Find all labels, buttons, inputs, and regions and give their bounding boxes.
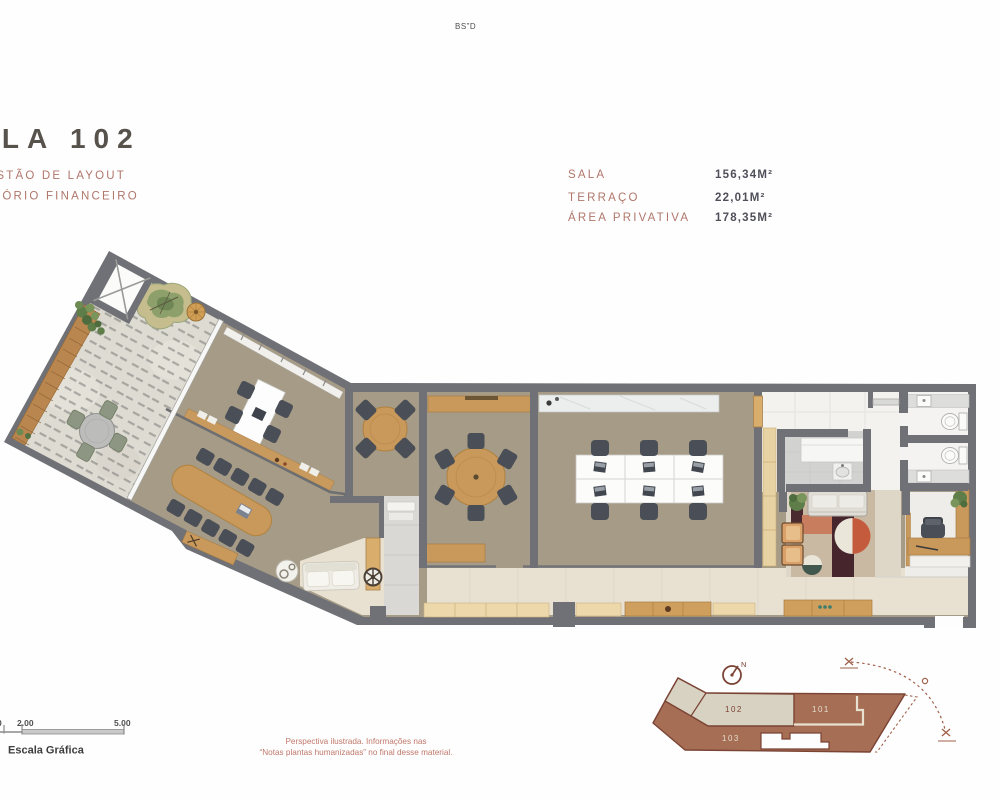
svg-text:103: 103 — [722, 734, 740, 743]
svg-text:N: N — [741, 660, 746, 669]
svg-text:2.00: 2.00 — [17, 718, 34, 728]
svg-text:ESCRITÓRIO FINANCEIRO: ESCRITÓRIO FINANCEIRO — [0, 190, 139, 203]
svg-text:102: 102 — [725, 705, 743, 714]
svg-text:156,34M²: 156,34M² — [715, 169, 773, 181]
svg-text:SALA 102: SALA 102 — [0, 123, 141, 154]
svg-text:5.00: 5.00 — [114, 718, 131, 728]
svg-text:SALA: SALA — [568, 169, 606, 181]
svg-text:178,35M²: 178,35M² — [715, 212, 773, 224]
svg-text:“Notas plantas humanizadas” no: “Notas plantas humanizadas” no final des… — [260, 748, 453, 757]
svg-text:BS”D: BS”D — [455, 22, 476, 31]
svg-text:Perspectiva ilustrada. Informa: Perspectiva ilustrada. Informações nas — [285, 737, 426, 746]
svg-text:0: 0 — [0, 718, 2, 728]
svg-text:ÁREA PRIVATIVA: ÁREA PRIVATIVA — [568, 211, 690, 224]
svg-text:TERRAÇO: TERRAÇO — [568, 192, 640, 204]
svg-text:22,01M²: 22,01M² — [715, 192, 766, 204]
svg-text:101: 101 — [812, 705, 830, 714]
svg-text:SUGESTÃO DE LAYOUT: SUGESTÃO DE LAYOUT — [0, 169, 126, 182]
svg-text:Escala Gráfica: Escala Gráfica — [8, 745, 85, 757]
